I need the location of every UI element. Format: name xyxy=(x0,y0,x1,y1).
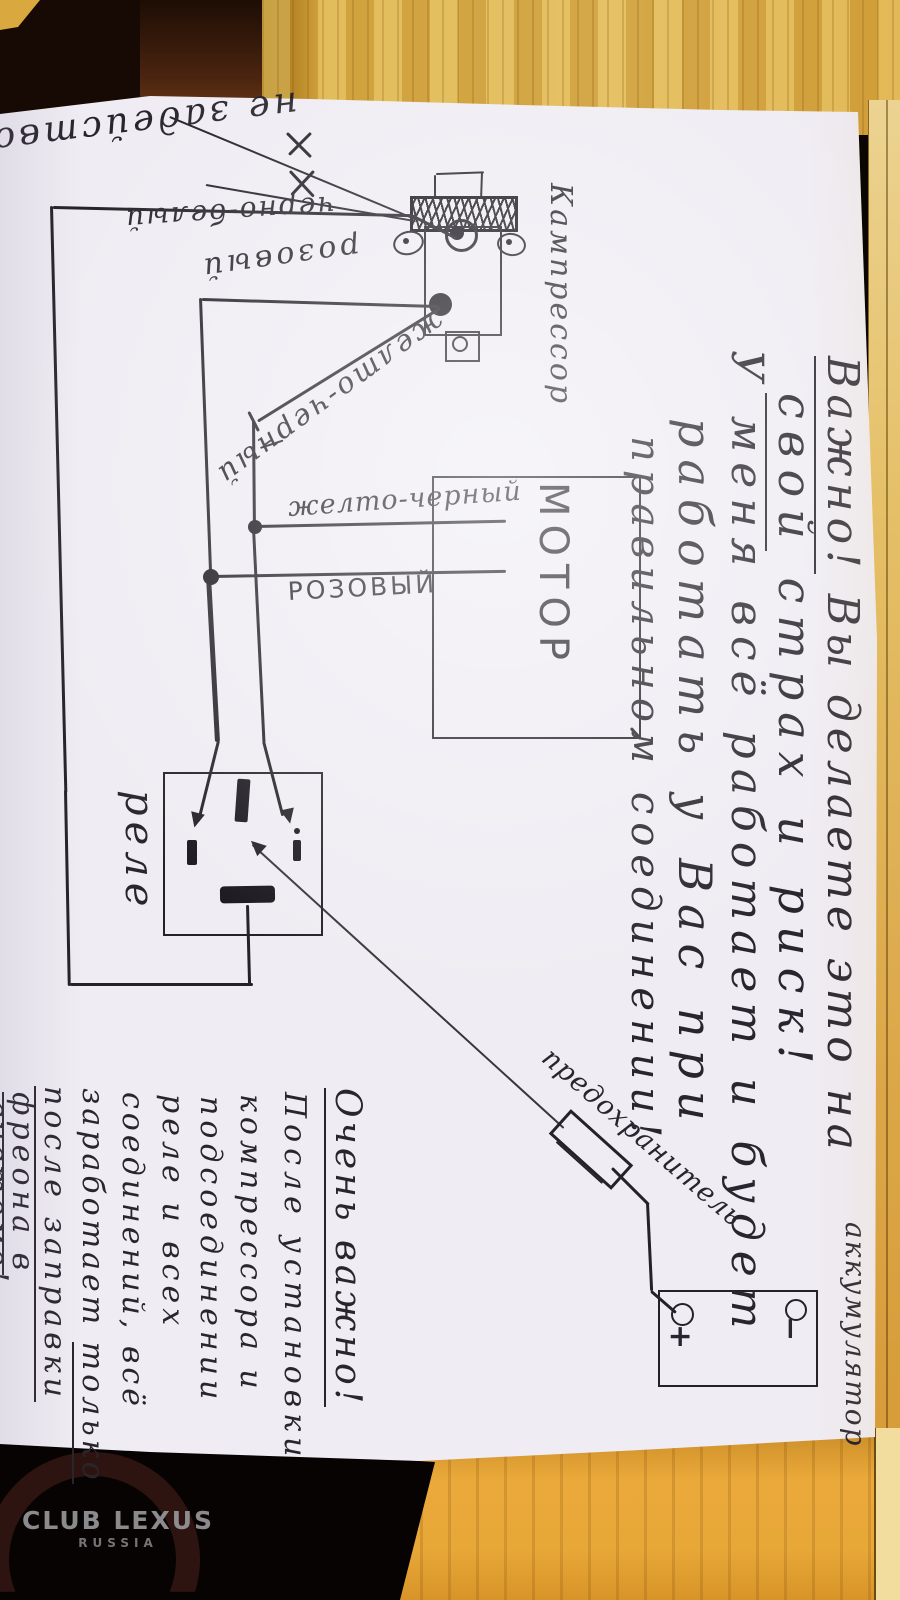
relay-label: реле xyxy=(116,790,162,912)
compressor-ear-left-hole xyxy=(403,238,409,244)
important-line-6: заработает только xyxy=(75,1088,110,1484)
important-word-underlined: только xyxy=(72,1342,110,1484)
watermark-line-2: RUSSIA xyxy=(22,1536,214,1550)
battery-minus-sign: − xyxy=(773,1316,808,1341)
relay-terminal-right-dot xyxy=(294,828,300,834)
warning-line-4: работать у Вас при xyxy=(668,418,722,1133)
wire-bottom-horizontal xyxy=(70,983,253,986)
photo-of-wiring-diagram: + − Кампрессор МОТОР реле аккумулятор че… xyxy=(0,0,900,1600)
battery-label: аккумулятор xyxy=(839,1222,872,1448)
warning-line-2: свой страх и риск! xyxy=(768,393,822,1075)
battery-plus-sign: + xyxy=(663,1324,698,1349)
compressor-connector-hole xyxy=(452,336,468,352)
compressor-ear-right-hole xyxy=(506,239,512,245)
junction-dot xyxy=(203,569,219,585)
warning-line-2-rest: страх и риск! xyxy=(768,551,822,1075)
compressor-bracket-left xyxy=(434,175,436,197)
warning-line-1-rest: Вы делаете это на xyxy=(817,574,868,1156)
motor-label: МОТОР xyxy=(530,482,576,668)
pine-board-right-seam xyxy=(886,100,888,1445)
warning-word-underlined: свой xyxy=(765,393,822,551)
important-title: Очень важно! xyxy=(324,1088,368,1407)
important-line-1: После установки xyxy=(277,1092,312,1462)
important-line-2: компрессора и xyxy=(233,1094,268,1394)
relay-terminal-bottom xyxy=(220,886,275,904)
important-line-5: соединений, всё xyxy=(115,1092,150,1410)
battery-terminal-plus xyxy=(671,1303,694,1326)
important-line-9: системе! xyxy=(0,1100,14,1286)
important-line-3: подсоединении xyxy=(193,1096,228,1404)
important-line-6-pre: заработает xyxy=(75,1088,110,1342)
warning-line-3: У меня всё работает и будет xyxy=(721,350,772,1338)
warning-line-5: правильном соединении! xyxy=(622,436,668,1145)
watermark-logo: CLUB LEXUS RUSSIA xyxy=(22,1506,214,1550)
relay-terminal-right xyxy=(293,840,301,861)
warning-word-underlined: Важно! xyxy=(814,356,868,574)
important-line-4: реле и всех xyxy=(155,1094,190,1330)
watermark-line-1: CLUB LEXUS xyxy=(22,1506,214,1535)
relay-terminal-left xyxy=(187,840,197,865)
compressor-label: Кампрессор xyxy=(543,183,578,406)
junction-dot xyxy=(248,520,262,534)
plank-bottom-right-light xyxy=(874,1428,900,1600)
warning-line-1: Важно! Вы делаете это на xyxy=(817,356,868,1156)
